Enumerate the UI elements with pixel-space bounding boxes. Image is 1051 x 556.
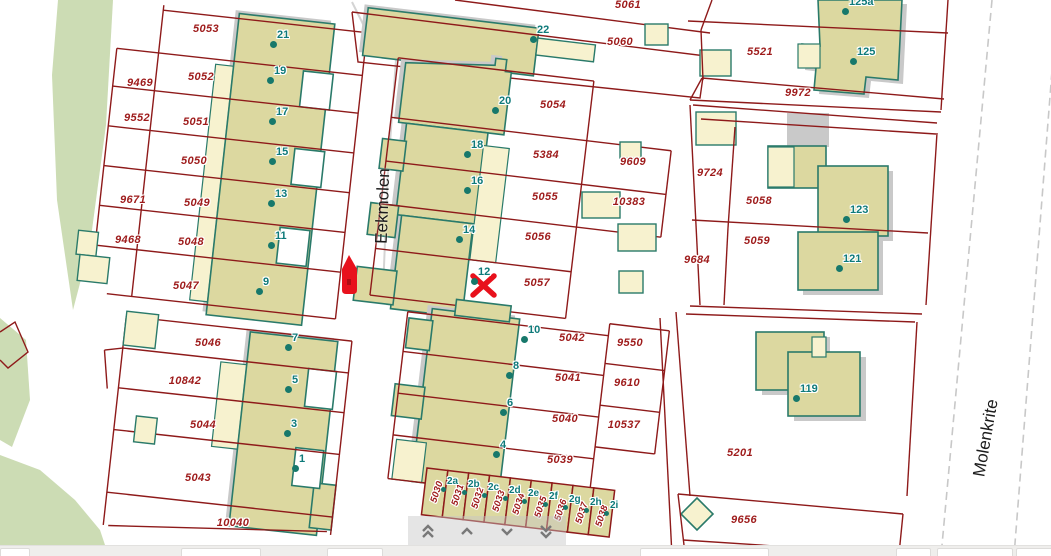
scroll-up-button[interactable]: [454, 519, 480, 543]
block-left-top: [71, 0, 368, 329]
bottom-bar-button[interactable]: [327, 548, 383, 556]
map-viewport[interactable]: 5053946950529552505150509671504994685048…: [0, 0, 1051, 556]
scroll-down-button[interactable]: [494, 519, 520, 543]
scroll-up-fast-button[interactable]: [415, 519, 441, 543]
bottom-toolbar: [0, 545, 1051, 556]
block-right: [660, 0, 948, 556]
x-marker: [473, 276, 494, 295]
bottom-bar-button[interactable]: [640, 548, 769, 556]
block-left-bottom: [85, 309, 352, 550]
bottom-bar-button[interactable]: [937, 548, 1013, 556]
bottom-bar-button[interactable]: [181, 548, 261, 556]
annex-buildings-center: [582, 142, 656, 293]
hydrant-marker: [342, 255, 357, 294]
bottom-bar-button[interactable]: [1016, 548, 1051, 556]
chevron-up-icon: [458, 522, 476, 540]
bottom-bar-button[interactable]: [0, 548, 30, 556]
block-center-top: [353, 42, 680, 339]
chevron-double-down-icon: [537, 522, 555, 540]
bottom-bar-button[interactable]: [896, 548, 931, 556]
chevron-down-icon: [498, 522, 516, 540]
map-canvas[interactable]: [0, 0, 1051, 556]
chevron-double-up-icon: [419, 522, 437, 540]
map-scroll-panel: [408, 516, 566, 545]
scroll-down-fast-button[interactable]: [533, 519, 559, 543]
